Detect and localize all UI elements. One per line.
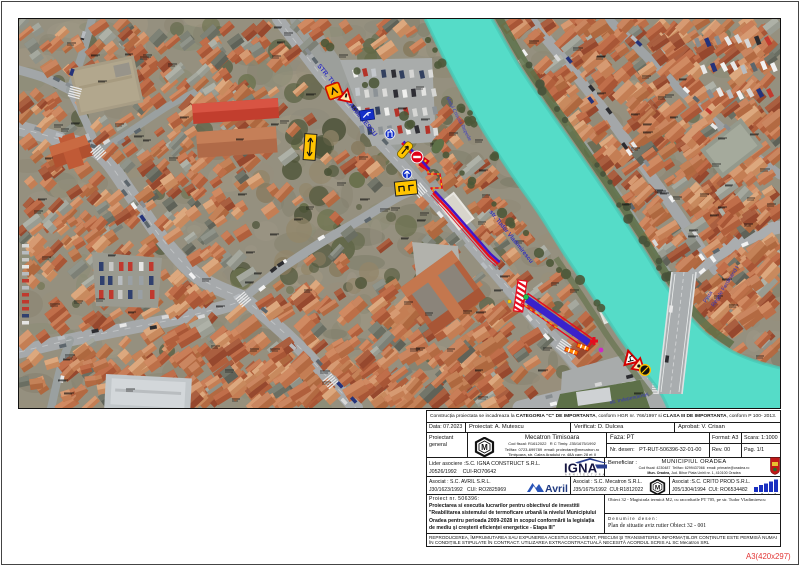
svg-text:Avril: Avril — [545, 483, 568, 494]
svg-text:A R H I T E C T U R A: A R H I T E C T U R A — [565, 474, 605, 477]
svg-text:M: M — [481, 443, 488, 452]
svg-text:M: M — [655, 484, 660, 491]
